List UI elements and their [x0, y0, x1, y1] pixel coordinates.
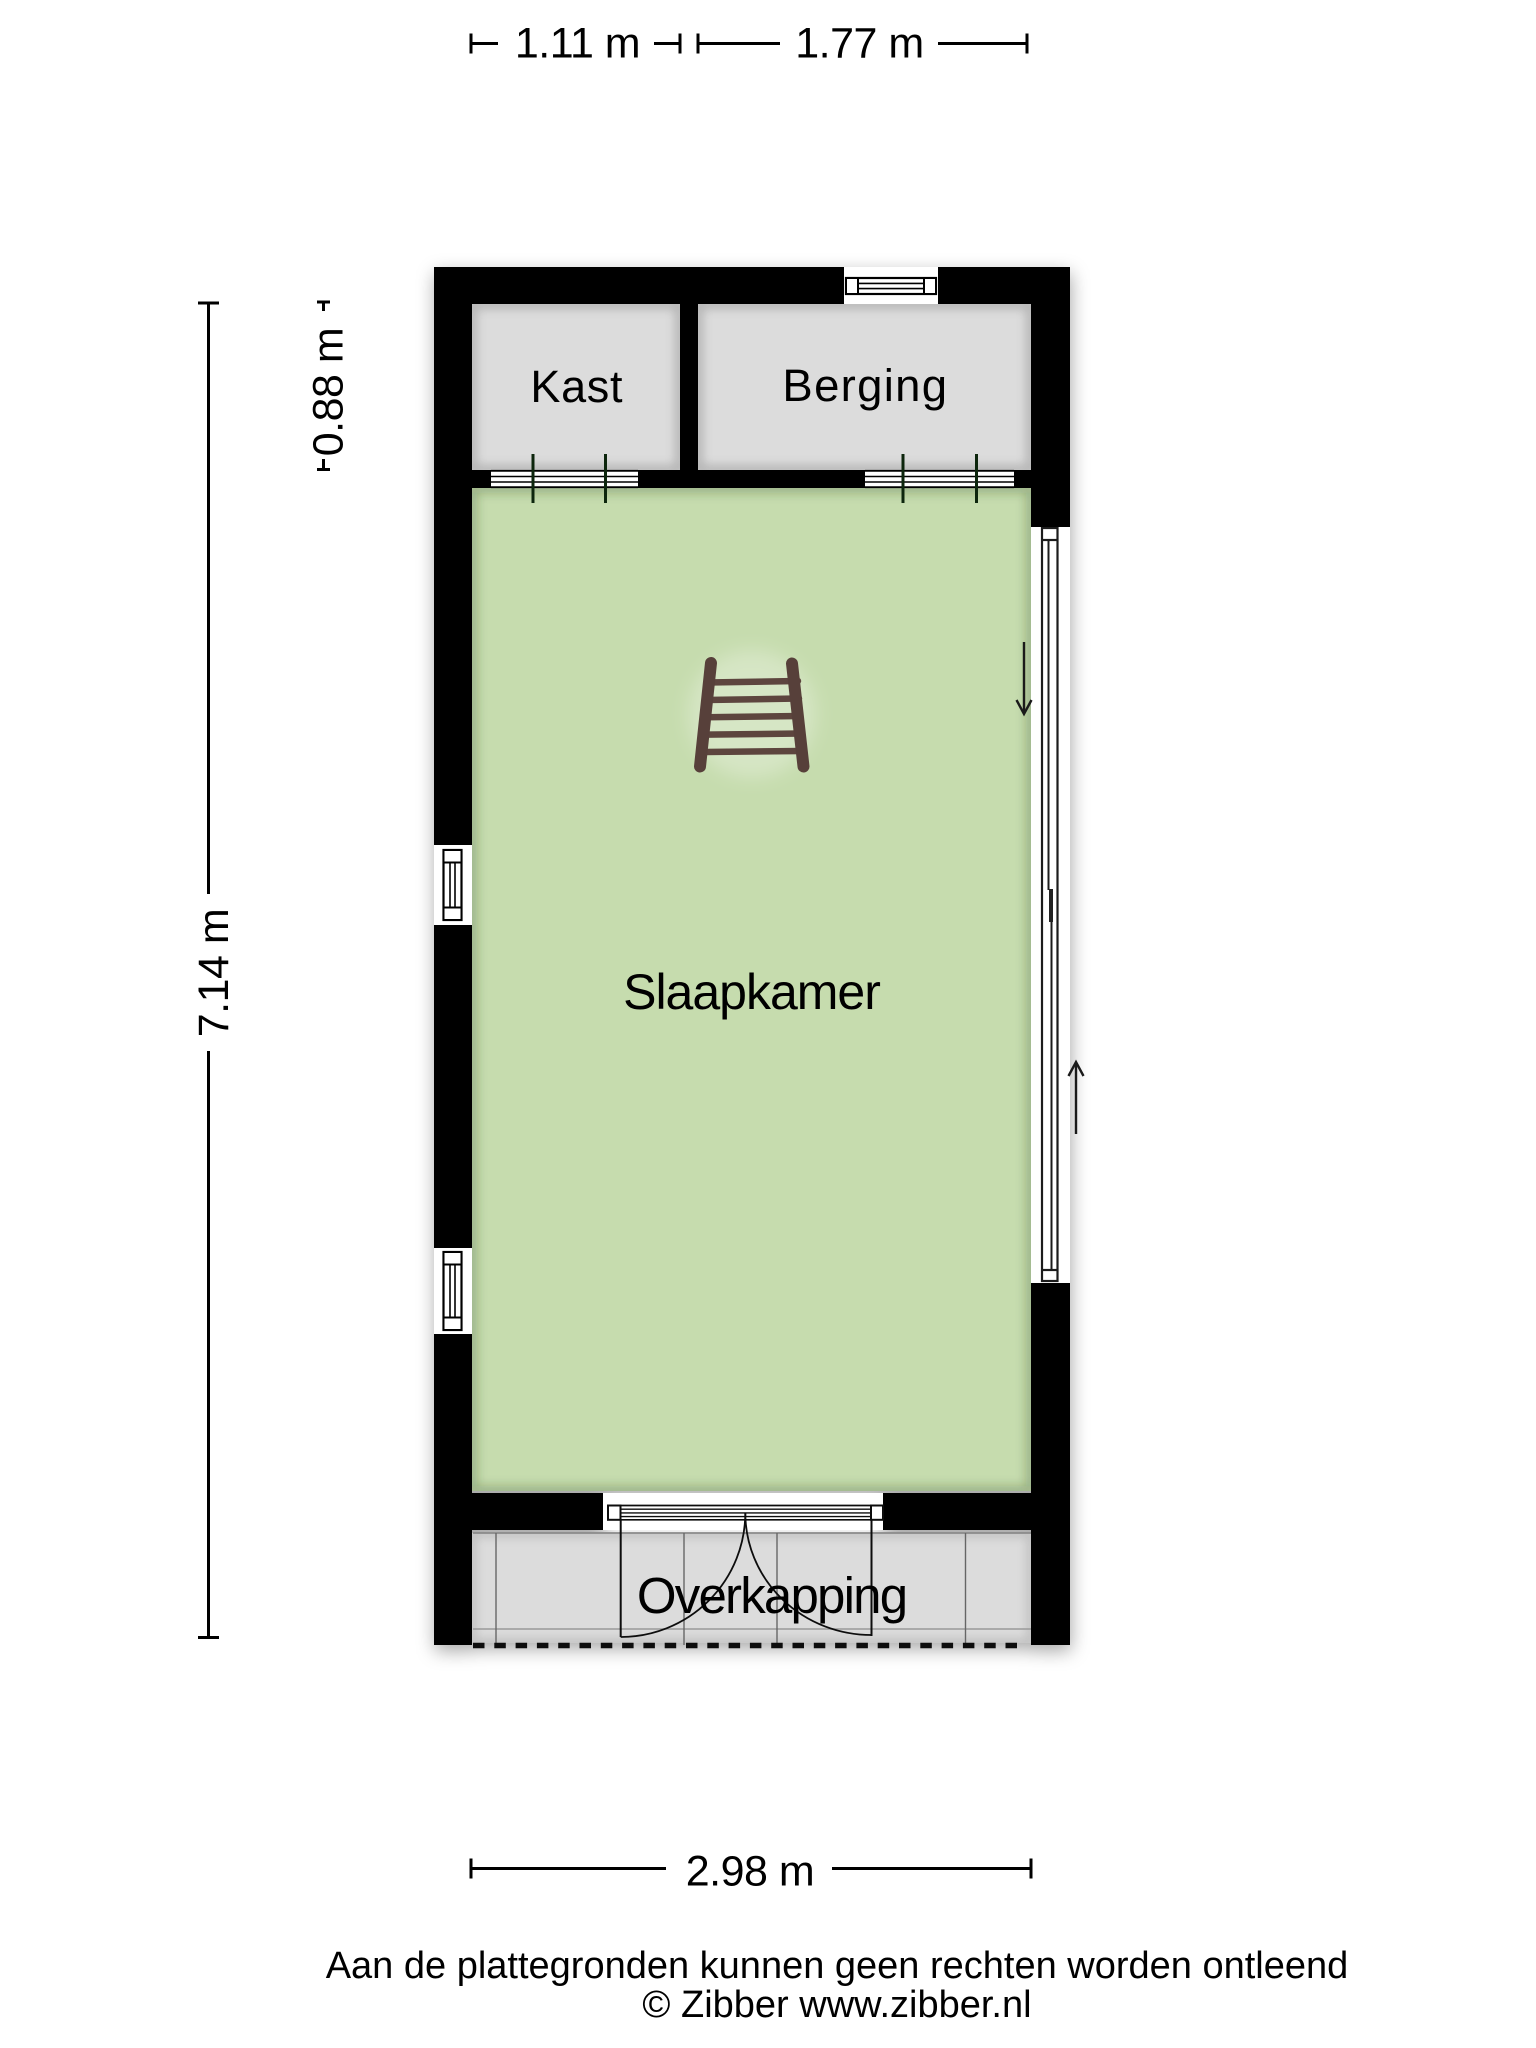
svg-text:1.77 m: 1.77 m: [795, 20, 923, 68]
svg-text:Aan de plattegronden kunnen ge: Aan de plattegronden kunnen geen rechten…: [326, 1945, 1349, 1987]
svg-text:2.98 m: 2.98 m: [686, 1848, 814, 1896]
svg-text:7.14 m: 7.14 m: [190, 909, 238, 1037]
svg-text:Berging: Berging: [782, 360, 948, 411]
svg-text:1.11 m: 1.11 m: [515, 20, 640, 68]
svg-text:Slaapkamer: Slaapkamer: [623, 964, 880, 1020]
svg-text:Kast: Kast: [530, 361, 623, 412]
svg-text:Overkapping: Overkapping: [637, 1567, 906, 1624]
svg-text:0.88 m: 0.88 m: [305, 328, 353, 456]
svg-text:© Zibber www.zibber.nl: © Zibber www.zibber.nl: [642, 1984, 1031, 2026]
